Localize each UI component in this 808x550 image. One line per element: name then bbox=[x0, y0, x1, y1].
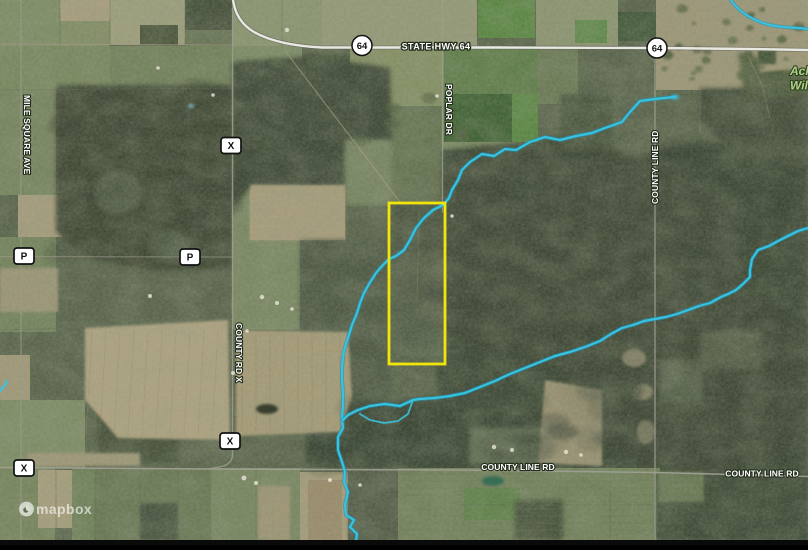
svg-text:STATE HWY 64: STATE HWY 64 bbox=[402, 42, 471, 52]
svg-text:MILE SQUARE AVE: MILE SQUARE AVE bbox=[22, 95, 32, 175]
svg-text:COUNTY LINE RD: COUNTY LINE RD bbox=[650, 131, 660, 205]
svg-text:Ack: Ack bbox=[789, 64, 808, 78]
svg-text:X: X bbox=[21, 464, 28, 475]
svg-text:X: X bbox=[228, 141, 235, 152]
svg-text:P: P bbox=[21, 252, 28, 263]
svg-text:COUNTY RD X: COUNTY RD X bbox=[234, 323, 244, 383]
svg-text:POPLAR DR: POPLAR DR bbox=[444, 84, 454, 135]
svg-text:COUNTY LINE RD: COUNTY LINE RD bbox=[725, 469, 799, 479]
svg-text:Wil: Wil bbox=[790, 79, 808, 93]
svg-text:X: X bbox=[227, 437, 234, 448]
svg-text:64: 64 bbox=[652, 43, 663, 54]
svg-text:64: 64 bbox=[357, 41, 368, 52]
svg-text:COUNTY LINE RD: COUNTY LINE RD bbox=[481, 462, 555, 472]
svg-text:P: P bbox=[187, 253, 194, 264]
svg-text:mapbox: mapbox bbox=[36, 501, 92, 517]
